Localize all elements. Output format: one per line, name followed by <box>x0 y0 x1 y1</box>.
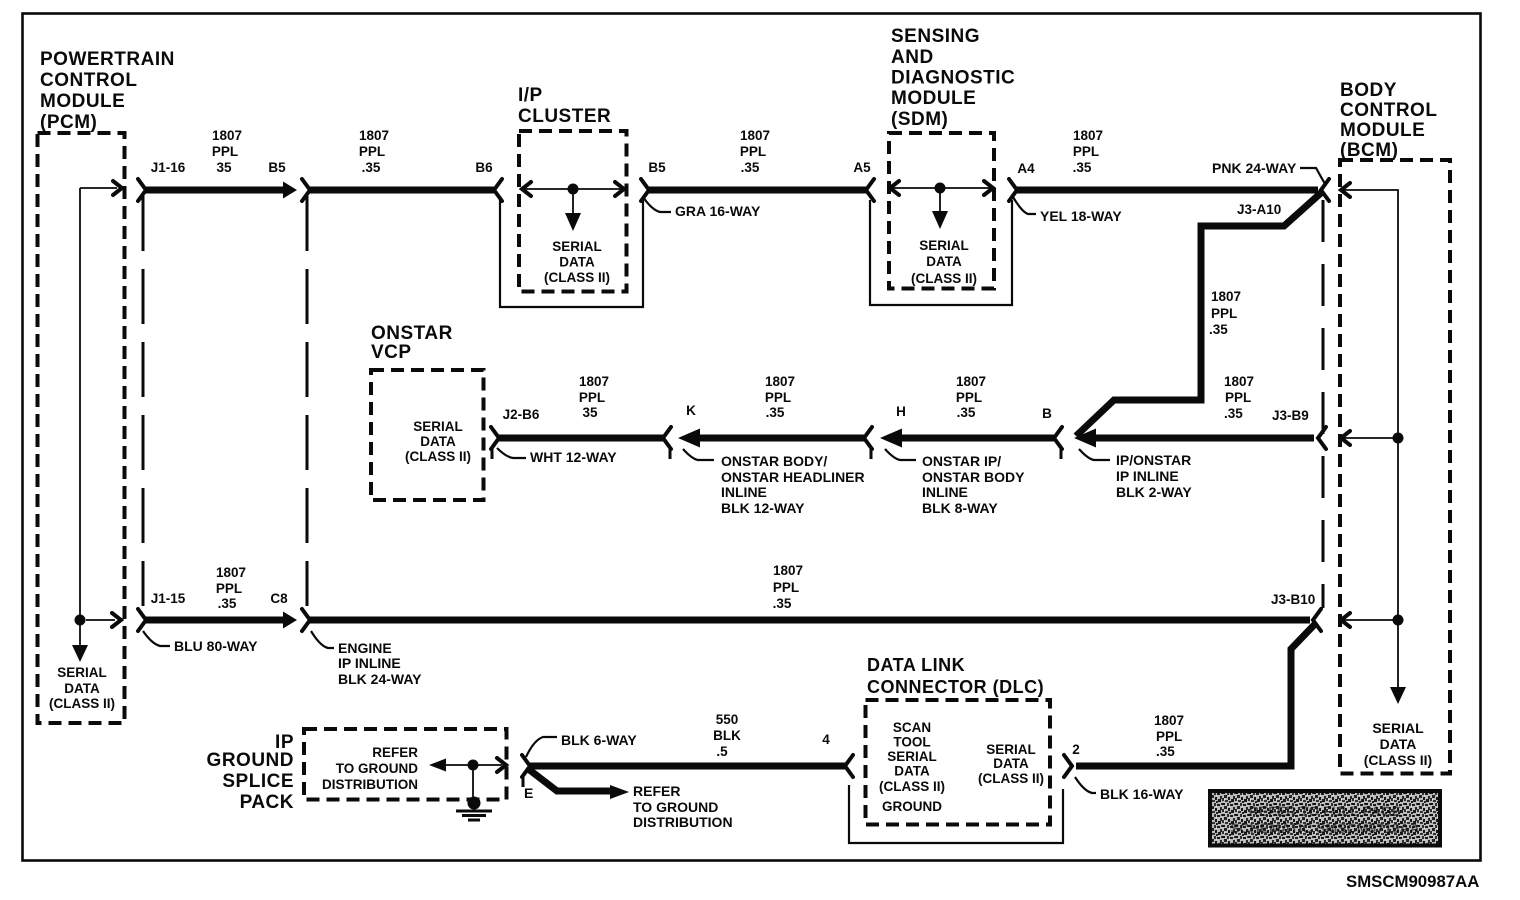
svg-text:PPL: PPL <box>740 144 766 159</box>
svg-text:PPL: PPL <box>579 390 605 405</box>
svg-text:C8: C8 <box>270 591 288 606</box>
svg-text:1807: 1807 <box>1224 374 1254 389</box>
svg-text:DATA: DATA <box>1380 736 1417 752</box>
svg-text:.35: .35 <box>773 596 792 611</box>
svg-text:1807: 1807 <box>359 128 389 143</box>
svg-text:CLUSTER: CLUSTER <box>518 106 611 127</box>
svg-text:.35: .35 <box>957 405 976 420</box>
svg-text:(CLASS II): (CLASS II) <box>879 779 945 794</box>
svg-text:(CLASS II): (CLASS II) <box>978 771 1044 786</box>
svg-text:(PCM): (PCM) <box>40 112 97 133</box>
svg-text:POWERTRAIN: POWERTRAIN <box>40 49 175 70</box>
svg-text:SERIAL: SERIAL <box>552 239 602 254</box>
svg-text:(SDM): (SDM) <box>891 109 948 130</box>
svg-text:4: 4 <box>822 732 830 747</box>
svg-text:B6: B6 <box>475 160 493 175</box>
svg-text:A4: A4 <box>1017 161 1035 176</box>
svg-text:PPL: PPL <box>1211 306 1237 321</box>
svg-text:BODY: BODY <box>1340 80 1397 101</box>
svg-text:DATA: DATA <box>894 764 930 779</box>
svg-text:B5: B5 <box>268 160 286 175</box>
svg-text:35: 35 <box>216 160 232 175</box>
svg-text:1807: 1807 <box>773 563 803 578</box>
svg-text:DISTRIBUTION: DISTRIBUTION <box>633 814 733 830</box>
svg-text:.35: .35 <box>1209 322 1228 337</box>
svg-text:SCAN: SCAN <box>893 720 931 735</box>
svg-text:SPLICE: SPLICE <box>222 771 294 792</box>
svg-text:ONSTAR IP/: ONSTAR IP/ <box>922 453 1001 469</box>
svg-text:BLK 12-WAY: BLK 12-WAY <box>721 500 805 516</box>
svg-text:MODULE: MODULE <box>40 91 125 112</box>
svg-text:1807: 1807 <box>740 128 770 143</box>
svg-text:.35: .35 <box>741 160 760 175</box>
svg-text:GROUND: GROUND <box>882 799 942 814</box>
svg-text:(CLASS II): (CLASS II) <box>1364 752 1432 768</box>
svg-text:PNK 24-WAY: PNK 24-WAY <box>1212 160 1297 176</box>
svg-text:(CLASS II): (CLASS II) <box>405 449 471 464</box>
svg-text:PPL: PPL <box>216 581 242 596</box>
svg-text:J3-A10: J3-A10 <box>1237 202 1281 217</box>
svg-text:MODULE: MODULE <box>891 88 976 109</box>
svg-text:I/P: I/P <box>518 85 543 106</box>
svg-text:2: 2 <box>1072 742 1080 757</box>
svg-text:ONSTAR HEADLINER: ONSTAR HEADLINER <box>721 469 865 485</box>
svg-text:DIAGNOSTIC: DIAGNOSTIC <box>891 68 1015 89</box>
svg-text:BLU 80-WAY: BLU 80-WAY <box>174 638 258 654</box>
svg-text:J3-B10: J3-B10 <box>1271 592 1315 607</box>
svg-text:TO GROUND: TO GROUND <box>336 761 419 776</box>
svg-text:TO GROUND: TO GROUND <box>633 799 718 815</box>
svg-text:REFER: REFER <box>372 745 418 760</box>
svg-text:IP INLINE: IP INLINE <box>338 655 401 671</box>
svg-text:SERIAL: SERIAL <box>887 749 937 764</box>
svg-text:ENGINE: ENGINE <box>338 640 392 656</box>
svg-text:SMSCM90987AA: SMSCM90987AA <box>1346 872 1479 891</box>
svg-text:BLK 8-WAY: BLK 8-WAY <box>922 500 998 516</box>
svg-text:.5: .5 <box>716 744 728 759</box>
svg-text:AND: AND <box>891 47 934 68</box>
svg-text:DATA: DATA <box>559 255 595 270</box>
svg-text:BLK 2-WAY: BLK 2-WAY <box>1116 484 1192 500</box>
svg-text:K: K <box>686 403 696 418</box>
svg-text:.35: .35 <box>1156 744 1175 759</box>
svg-text:INLINE: INLINE <box>721 484 767 500</box>
svg-text:MODULE: MODULE <box>1340 120 1425 141</box>
svg-text:(CLASS II): (CLASS II) <box>911 271 977 286</box>
svg-text:1807: 1807 <box>1211 289 1241 304</box>
svg-text:SERIAL: SERIAL <box>57 665 107 680</box>
svg-text:J3-B9: J3-B9 <box>1272 408 1309 423</box>
svg-text:ONSTAR BODY: ONSTAR BODY <box>922 469 1025 485</box>
svg-text:(CLASS II): (CLASS II) <box>544 270 610 285</box>
svg-text:B5: B5 <box>648 160 666 175</box>
svg-text:PPL: PPL <box>1156 729 1182 744</box>
svg-text:1807: 1807 <box>956 374 986 389</box>
svg-text:DATA LINK: DATA LINK <box>867 655 965 675</box>
svg-text:.35: .35 <box>766 405 785 420</box>
svg-text:PPL: PPL <box>765 390 791 405</box>
svg-text:PPL: PPL <box>1073 144 1099 159</box>
svg-text:550: 550 <box>716 712 739 727</box>
svg-text:BLK 16-WAY: BLK 16-WAY <box>1100 786 1184 802</box>
svg-text:INLINE: INLINE <box>922 484 968 500</box>
svg-text:1807: 1807 <box>579 374 609 389</box>
svg-text:ONSTAR: ONSTAR <box>371 323 453 344</box>
svg-text:IP INLINE: IP INLINE <box>1116 468 1179 484</box>
svg-text:IP/ONSTAR: IP/ONSTAR <box>1116 452 1191 468</box>
svg-text:(BCM): (BCM) <box>1340 140 1398 161</box>
svg-text:1807: 1807 <box>216 565 246 580</box>
svg-text:DATA: DATA <box>926 254 962 269</box>
svg-text:TOOL: TOOL <box>893 735 930 750</box>
svg-text:B: B <box>1042 406 1052 421</box>
svg-text:J2-B6: J2-B6 <box>503 407 540 422</box>
svg-text:DATA: DATA <box>64 681 100 696</box>
svg-text:J1-15: J1-15 <box>151 591 186 606</box>
svg-text:WHT 12-WAY: WHT 12-WAY <box>530 449 617 465</box>
svg-text:SERIAL: SERIAL <box>1372 720 1424 736</box>
svg-text:SENSING: SENSING <box>891 26 980 47</box>
svg-text:J1-16: J1-16 <box>151 160 186 175</box>
svg-text:BLK: BLK <box>713 728 741 743</box>
svg-text:.35: .35 <box>1073 160 1092 175</box>
svg-text:PPL: PPL <box>956 390 982 405</box>
svg-text:BLK 24-WAY: BLK 24-WAY <box>338 671 422 687</box>
svg-text:SERIAL: SERIAL <box>986 742 1036 757</box>
svg-text:CONTROL: CONTROL <box>40 70 137 91</box>
svg-text:BLK 6-WAY: BLK 6-WAY <box>561 732 637 748</box>
svg-text:ONSTAR BODY/: ONSTAR BODY/ <box>721 453 827 469</box>
svg-text:.35: .35 <box>218 596 237 611</box>
svg-text:SERIAL: SERIAL <box>919 238 969 253</box>
svg-text:DATA: DATA <box>420 434 456 449</box>
svg-text:YEL 18-WAY: YEL 18-WAY <box>1040 208 1122 224</box>
svg-text:1807: 1807 <box>212 128 242 143</box>
svg-text:.35: .35 <box>1224 406 1243 421</box>
svg-text:1807: 1807 <box>1154 713 1184 728</box>
svg-text:35: 35 <box>582 405 598 420</box>
svg-text:PPL: PPL <box>212 144 238 159</box>
svg-text:DATA: DATA <box>993 756 1029 771</box>
svg-text:1807: 1807 <box>1073 128 1103 143</box>
svg-text:PPL: PPL <box>1225 390 1251 405</box>
svg-text:GRA 16-WAY: GRA 16-WAY <box>675 203 761 219</box>
svg-text:E: E <box>524 785 533 801</box>
svg-text:A5: A5 <box>853 160 871 175</box>
svg-text:VCP: VCP <box>371 342 412 363</box>
svg-text:PPL: PPL <box>359 144 385 159</box>
svg-text:PPL: PPL <box>773 580 799 595</box>
svg-text:DISTRIBUTION: DISTRIBUTION <box>322 777 418 792</box>
svg-text:PACK: PACK <box>240 792 294 813</box>
svg-text:H: H <box>896 404 906 419</box>
svg-text:CONNECTOR (DLC): CONNECTOR (DLC) <box>867 677 1044 697</box>
svg-text:GROUND: GROUND <box>207 750 294 771</box>
svg-text:SERIAL: SERIAL <box>413 419 463 434</box>
svg-text:(CLASS II): (CLASS II) <box>49 696 115 711</box>
svg-text:CONTROL: CONTROL <box>1340 100 1437 121</box>
svg-text:.35: .35 <box>362 160 381 175</box>
svg-text:REFER: REFER <box>633 783 680 799</box>
svg-text:1807: 1807 <box>765 374 795 389</box>
